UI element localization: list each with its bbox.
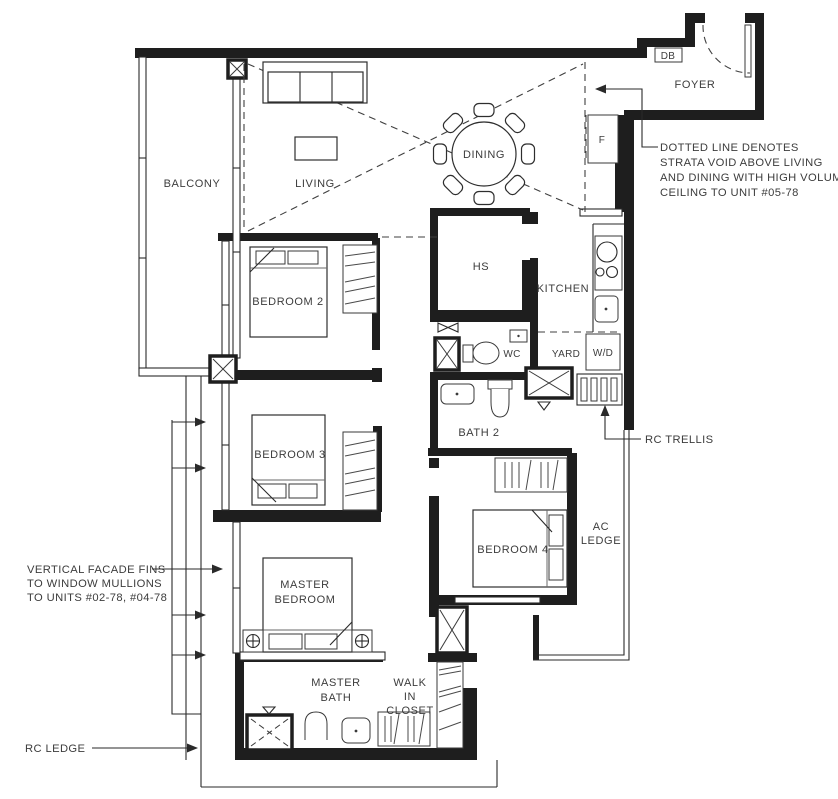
duct-shaft-wc bbox=[435, 338, 459, 370]
strata-void-text-line2: STRATA VOID ABOVE LIVING bbox=[660, 157, 823, 169]
column-balcony-bottom bbox=[210, 356, 236, 382]
balcony-label: BALCONY bbox=[164, 178, 221, 190]
duct-shaft-bedroom4 bbox=[437, 607, 467, 653]
bath2-label: BATH 2 bbox=[458, 427, 499, 439]
room-bedroom4: BEDROOM 4 bbox=[473, 458, 567, 587]
rc-trellis-text: RC TRELLIS bbox=[645, 434, 713, 446]
master-sink bbox=[342, 718, 370, 743]
balcony-left-window bbox=[139, 57, 146, 369]
floor-plan-drawing: DB FOYER BALCONY LIVING DINING bbox=[0, 0, 838, 799]
bath2-shower bbox=[526, 368, 572, 410]
room-yard: YARD W/D bbox=[538, 332, 622, 370]
kitchen-sink bbox=[595, 296, 618, 322]
vent-symbol bbox=[438, 323, 458, 332]
master-bedroom-label-line1: MASTER bbox=[280, 579, 329, 591]
entrance-door-swing-arc bbox=[703, 25, 750, 73]
facade-fins-text-line2: TO WINDOW MULLIONS bbox=[27, 578, 162, 590]
cooktop bbox=[595, 236, 622, 290]
wc-basin bbox=[510, 330, 527, 342]
bedroom2-bed bbox=[250, 247, 327, 337]
balcony-bottom-window bbox=[139, 368, 211, 376]
master-bedroom-bottom-window bbox=[240, 652, 385, 660]
room-walk-in-closet: WALK IN CLOSET bbox=[378, 662, 463, 748]
master-toilet bbox=[305, 712, 327, 740]
bedroom3-wardrobe bbox=[343, 432, 377, 510]
fridge-label: F bbox=[599, 135, 605, 146]
ac-ledge-label-line2: LEDGE bbox=[581, 535, 621, 547]
annotation-rc-ledge: RC LEDGE bbox=[25, 743, 197, 755]
strata-void-text-line3: AND DINING WITH HIGH VOLUME bbox=[660, 172, 838, 184]
wic-wardrobe-right bbox=[437, 662, 463, 748]
master-nightstand-left bbox=[243, 630, 263, 652]
facade-fins-text-line1: VERTICAL FACADE FINS bbox=[27, 564, 166, 576]
column-top bbox=[228, 60, 246, 78]
master-shower bbox=[247, 707, 292, 750]
hs-label: HS bbox=[473, 261, 489, 273]
kitchen-counter-window bbox=[580, 209, 622, 216]
room-dining: DINING bbox=[434, 104, 535, 205]
wic-label-line1: WALK bbox=[393, 677, 426, 689]
wic-rack-bottom bbox=[378, 712, 430, 746]
wic-label-line2: IN bbox=[404, 691, 416, 703]
master-bedroom-label-line2: BEDROOM bbox=[274, 594, 335, 606]
wc-toilet bbox=[463, 342, 499, 364]
room-kitchen: F KITCHEN bbox=[537, 115, 624, 332]
bedroom2-label: BEDROOM 2 bbox=[252, 296, 323, 308]
sofa bbox=[263, 62, 367, 103]
foyer-label: FOYER bbox=[675, 79, 716, 91]
wc-label: WC bbox=[503, 349, 520, 360]
room-living: LIVING bbox=[263, 62, 367, 190]
strata-void-text-line1: DOTTED LINE DENOTES bbox=[660, 142, 799, 154]
rc-ledge-text: RC LEDGE bbox=[25, 743, 85, 755]
room-bedroom3: BEDROOM 3 bbox=[252, 415, 377, 510]
coffee-table bbox=[295, 137, 337, 160]
yard-label: YARD bbox=[552, 349, 580, 360]
db-label: DB bbox=[661, 51, 676, 62]
master-nightstand-right bbox=[352, 630, 372, 652]
bath2-toilet bbox=[488, 380, 512, 417]
room-balcony: BALCONY bbox=[164, 178, 221, 190]
bedroom4-label: BEDROOM 4 bbox=[477, 544, 548, 556]
room-hs: HS bbox=[473, 261, 489, 273]
master-bath-label-line1: MASTER bbox=[311, 677, 360, 689]
washer-dryer-label: W/D bbox=[593, 348, 613, 359]
bedroom3-label: BEDROOM 3 bbox=[254, 449, 325, 461]
ac-ledge-label-line1: AC bbox=[593, 521, 609, 533]
rc-trellis bbox=[577, 374, 622, 405]
bath2-sink bbox=[441, 384, 474, 404]
floor-plan-page: DB FOYER BALCONY LIVING DINING bbox=[0, 0, 838, 799]
bedroom4-wardrobe bbox=[495, 458, 567, 492]
bedroom2-wardrobe bbox=[343, 245, 377, 313]
master-bath-label-line2: BATH bbox=[321, 692, 352, 704]
annotation-rc-trellis: RC TRELLIS bbox=[605, 406, 713, 446]
strata-void-text-line4: CEILING TO UNIT #05-78 bbox=[660, 187, 799, 199]
bedroom4-bottom-window bbox=[455, 597, 540, 603]
dining-label: DINING bbox=[463, 149, 505, 161]
living-balcony-window bbox=[233, 78, 240, 358]
room-foyer: DB FOYER bbox=[655, 25, 751, 91]
room-master-bedroom: MASTER BEDROOM bbox=[243, 558, 372, 652]
facade-fins-text-line3: TO UNITS #02-78, #04-78 bbox=[27, 592, 167, 604]
living-label: LIVING bbox=[295, 178, 335, 190]
wic-label-line3: CLOSET bbox=[386, 705, 434, 717]
kitchen-label: KITCHEN bbox=[537, 283, 589, 295]
room-bedroom2: BEDROOM 2 bbox=[250, 245, 377, 337]
room-master-bath: MASTER BATH bbox=[247, 677, 370, 750]
annotation-facade-fins: VERTICAL FACADE FINS TO WINDOW MULLIONS … bbox=[27, 420, 222, 714]
entrance-door-leaf bbox=[745, 25, 751, 77]
